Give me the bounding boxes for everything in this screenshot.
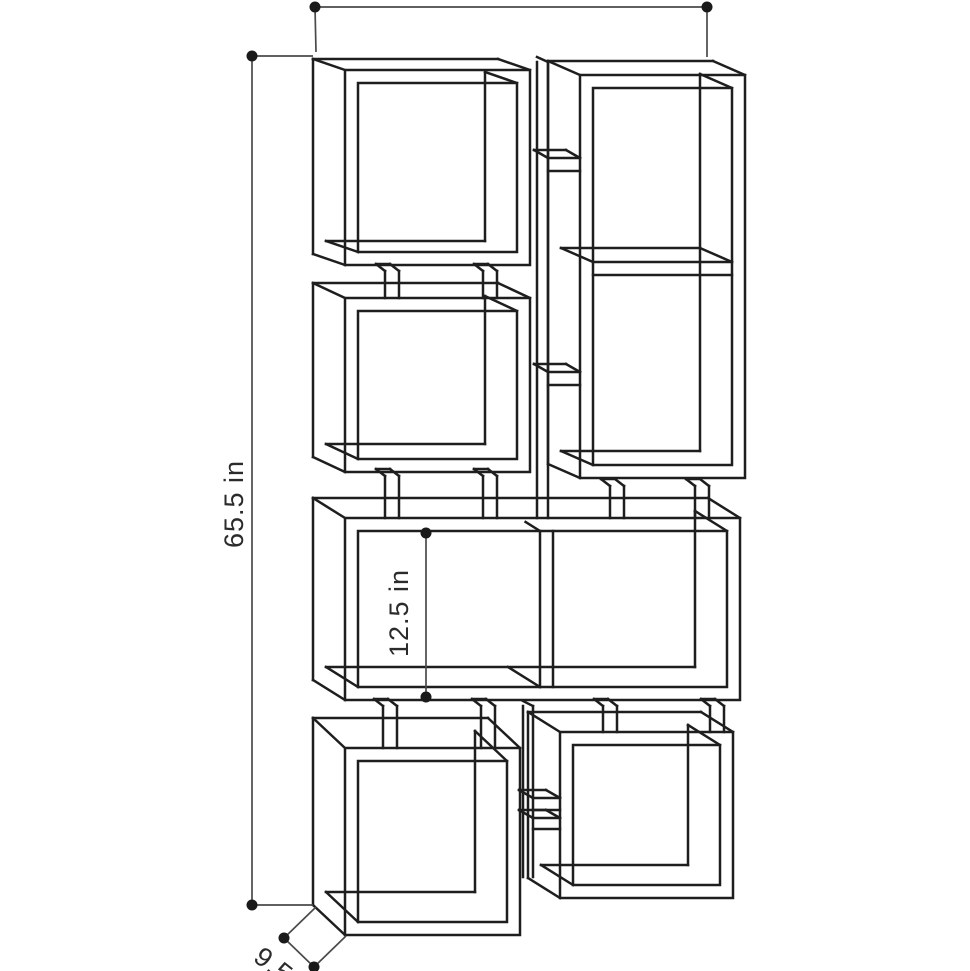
box-wide-center-divider bbox=[508, 667, 540, 687]
box-mid-left-depth-edge bbox=[313, 283, 345, 298]
box-mid-left-opening bbox=[358, 311, 517, 459]
box-mid-left-depth-edge bbox=[313, 457, 345, 472]
box-bottom-right-depth-edge bbox=[701, 712, 733, 732]
dimension-endpoint-dot bbox=[247, 900, 258, 911]
box-top-left-depth-edge bbox=[498, 59, 530, 70]
dimension-labels: 65.5 in 12.5 in 9.5 in bbox=[219, 460, 414, 971]
box-tall-right-depth-edge bbox=[548, 61, 580, 75]
box-bottom-right-inner-wall bbox=[688, 725, 720, 745]
depth-dim-extension bbox=[314, 936, 346, 967]
box-bottom-right-depth-edge bbox=[528, 878, 560, 898]
box-bottom-left-depth-edge bbox=[313, 905, 345, 935]
box-wide-center-floor-edge bbox=[326, 667, 358, 687]
diagram-page: 65.5 in 12.5 in 9.5 in bbox=[0, 0, 970, 971]
height-dimension-label: 65.5 in bbox=[219, 460, 249, 548]
middle-column-top bbox=[523, 701, 533, 706]
box-tall-right-opening bbox=[593, 88, 732, 465]
dimension-endpoint-dot bbox=[247, 51, 258, 62]
furniture-diagram: 65.5 in 12.5 in 9.5 in bbox=[0, 0, 970, 971]
connector-post-top bbox=[700, 479, 709, 486]
box-tall-right-shelf bbox=[700, 248, 732, 262]
inner-height-dimension-label: 12.5 in bbox=[384, 569, 414, 657]
box-bottom-right-floor-edge bbox=[541, 865, 573, 885]
box-mid-left-depth-edge bbox=[498, 283, 530, 298]
box-bottom-left-depth-edge bbox=[488, 718, 520, 748]
box-top-left-floor-edge bbox=[326, 241, 358, 252]
width-dim-extension bbox=[315, 7, 316, 52]
box-bottom-right-front bbox=[560, 732, 733, 898]
box-bottom-left-depth-edge bbox=[313, 718, 345, 748]
middle-column-top bbox=[537, 57, 548, 62]
shelf-unit bbox=[313, 57, 745, 935]
box-bottom-left-opening bbox=[358, 761, 507, 922]
connector-post-top bbox=[615, 479, 624, 486]
box-bottom-left-floor-edge bbox=[326, 892, 358, 922]
box-top-left-opening bbox=[358, 83, 517, 252]
dimension-endpoint-dot bbox=[310, 2, 321, 13]
box-tall-right-floor-edge bbox=[561, 451, 593, 465]
box-wide-center-depth-edge bbox=[708, 498, 740, 518]
box-bottom-left-front bbox=[345, 748, 520, 935]
dimension-endpoint-dot bbox=[279, 933, 290, 944]
dimension-endpoint-dot bbox=[421, 692, 432, 703]
box-mid-left-floor-edge bbox=[326, 444, 358, 459]
box-tall-right-depth-edge bbox=[548, 464, 580, 478]
box-top-left-depth-edge bbox=[313, 59, 345, 70]
depth-dim-extension bbox=[284, 907, 316, 938]
box-tall-right-shelf bbox=[561, 248, 593, 262]
box-tall-right-front bbox=[580, 75, 745, 478]
box-wide-center-inner-wall bbox=[695, 511, 727, 531]
box-top-left-depth-edge bbox=[313, 254, 345, 265]
box-top-left-inner-wall bbox=[485, 72, 517, 83]
dimension-endpoint-dot bbox=[702, 2, 713, 13]
dimension-lines bbox=[247, 2, 713, 971]
box-mid-left-front bbox=[345, 298, 530, 472]
dimension-endpoint-dot bbox=[421, 528, 432, 539]
box-top-left-front bbox=[345, 70, 530, 265]
box-tall-right-depth-edge bbox=[713, 61, 745, 75]
box-wide-center-depth-edge bbox=[313, 680, 345, 700]
box-wide-center-depth-edge bbox=[313, 498, 345, 518]
box-wide-center-divider bbox=[526, 522, 540, 531]
